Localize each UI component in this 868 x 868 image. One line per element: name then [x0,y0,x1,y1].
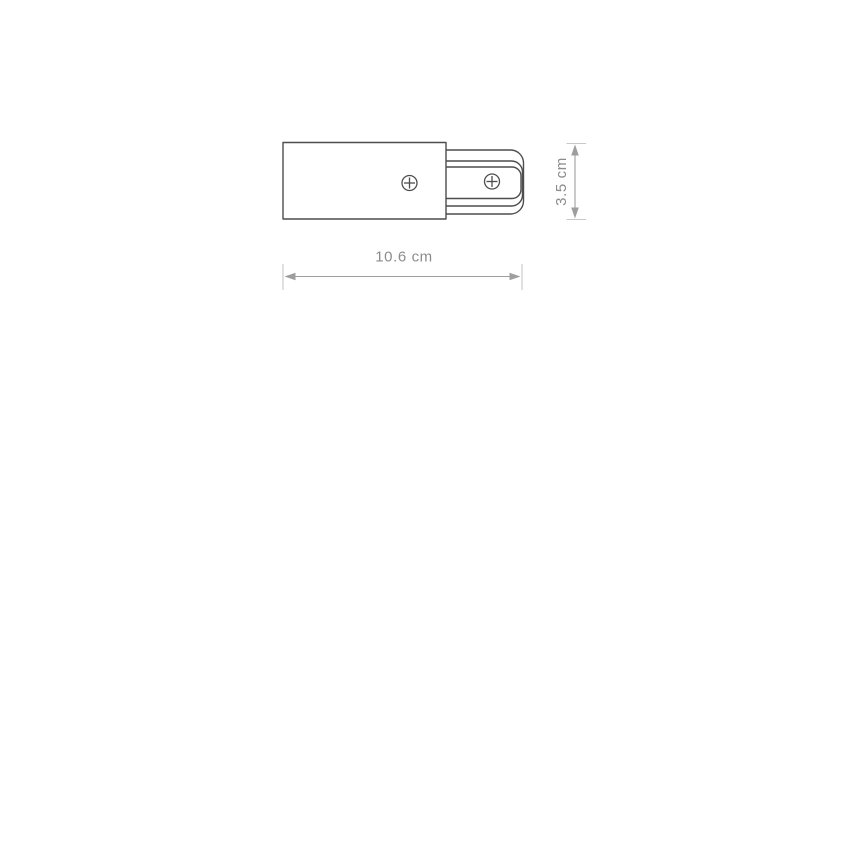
arrow-up-icon [571,145,579,156]
product-outline [283,143,524,220]
arrow-right-icon [510,273,521,281]
screw-left [402,176,417,191]
width-dimension-label: 10.6 cm [375,249,433,266]
arrow-left-icon [285,273,296,281]
height-dimension-label: 3.5 cm [553,157,570,206]
connector-layer-inner [446,167,521,199]
technical-drawing: 3.5 cm 10.6 cm [0,0,868,868]
arrow-down-icon [571,208,579,219]
screw-right [485,174,500,189]
width-dimension: 10.6 cm [283,249,522,291]
diagram-canvas: 3.5 cm 10.6 cm [0,0,868,868]
main-body-outline [283,143,446,220]
height-dimension: 3.5 cm [553,144,586,220]
